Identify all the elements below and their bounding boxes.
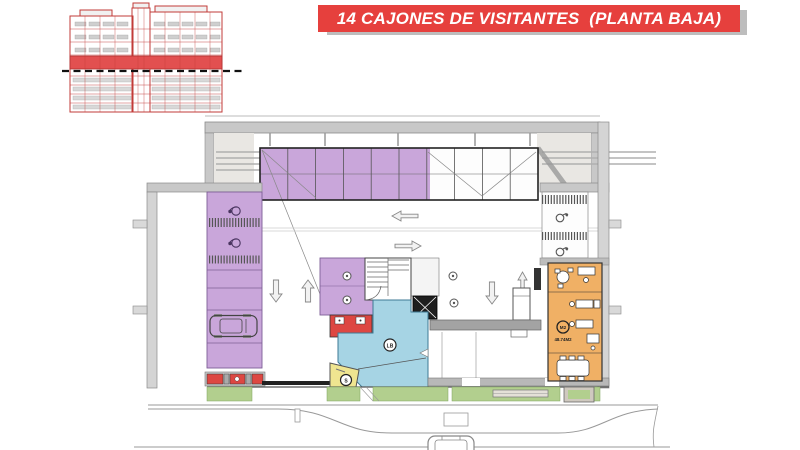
building-section-inset (60, 2, 245, 115)
landscape-strip (207, 387, 609, 402)
street (134, 405, 670, 450)
office-area-label: 48.74M2 (554, 337, 572, 342)
interior-wall (430, 320, 541, 330)
arrow-left-icon (392, 211, 418, 221)
arrow-up-icon (518, 272, 527, 290)
entry-barrier-units (205, 372, 265, 386)
lobby-badge-label: LB (387, 343, 394, 349)
arrow-right-icon (395, 241, 421, 251)
arrow-down-icon (486, 282, 498, 304)
arrow-up-icon (302, 280, 314, 302)
floor-plan: LB S (130, 110, 680, 450)
column-ticks (270, 133, 530, 146)
office-badge-label: M2 (560, 325, 567, 330)
title-banner: 14 CAJONES DE VISITANTES (PLANTA BAJA) (318, 5, 740, 32)
office-zone: M2 48.74M2 (548, 263, 602, 381)
street-car-icon (428, 436, 474, 450)
section-upper-floors (70, 22, 222, 55)
arrow-down-icon (270, 280, 282, 302)
section-highlighted-level (70, 56, 222, 69)
section-lower-floors (70, 76, 222, 109)
presentation-slide: 14 CAJONES DE VISITANTES (PLANTA BAJA) (0, 0, 800, 450)
slide-title: 14 CAJONES DE VISITANTES (PLANTA BAJA) (337, 9, 721, 29)
